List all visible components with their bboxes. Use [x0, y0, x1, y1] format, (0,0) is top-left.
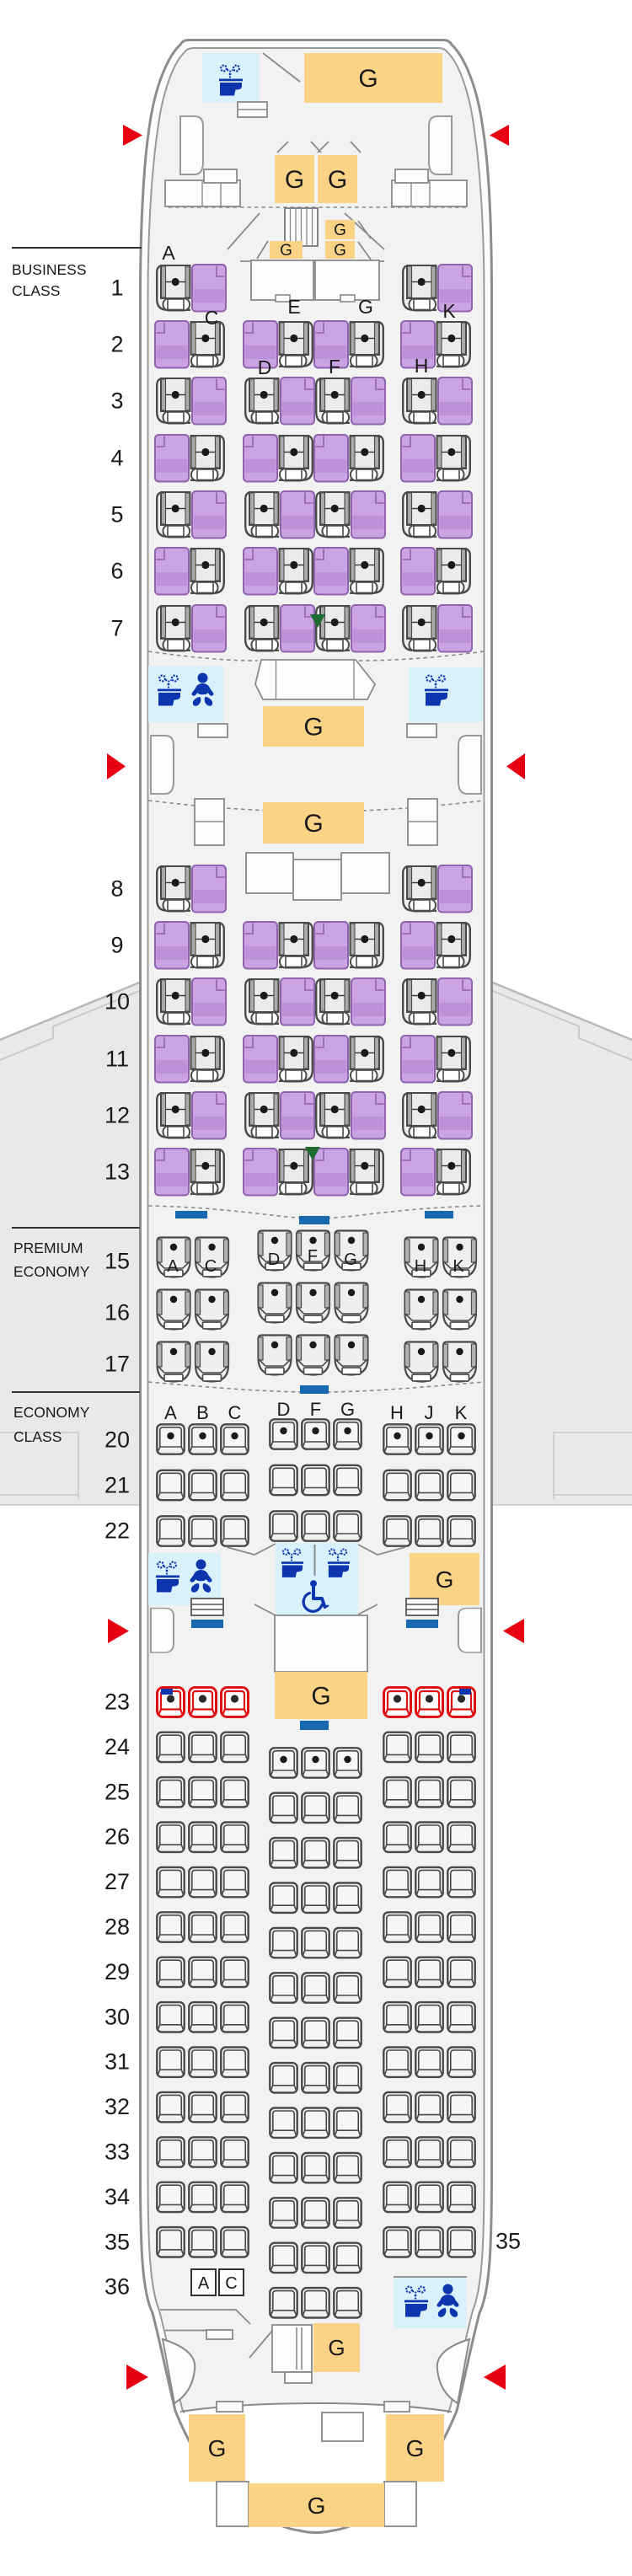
- svg-text:8: 8: [110, 876, 123, 902]
- svg-text:2: 2: [110, 332, 123, 357]
- svg-text:G: G: [280, 242, 292, 260]
- svg-text:PREMIUM: PREMIUM: [13, 1240, 83, 1256]
- svg-text:25: 25: [104, 1779, 130, 1804]
- svg-text:23: 23: [104, 1690, 130, 1715]
- svg-text:5: 5: [110, 502, 123, 528]
- svg-text:G: G: [208, 2435, 227, 2461]
- svg-text:6: 6: [110, 559, 123, 584]
- svg-text:G: G: [328, 2335, 345, 2360]
- svg-text:B: B: [196, 1402, 209, 1423]
- svg-text:26: 26: [104, 1824, 130, 1850]
- svg-text:F: F: [329, 356, 340, 378]
- svg-text:G: G: [358, 296, 373, 318]
- svg-text:E: E: [287, 296, 300, 318]
- svg-text:29: 29: [104, 1959, 130, 1984]
- svg-text:22: 22: [104, 1518, 130, 1544]
- svg-text:A: A: [167, 1257, 179, 1276]
- svg-text:C: C: [225, 2274, 237, 2293]
- svg-text:24: 24: [104, 1734, 130, 1759]
- svg-text:G: G: [303, 714, 323, 742]
- svg-text:21: 21: [104, 1473, 130, 1498]
- svg-text:C: C: [228, 1402, 242, 1423]
- svg-text:G: G: [358, 65, 378, 93]
- svg-text:30: 30: [104, 2004, 130, 2029]
- svg-text:F: F: [310, 1399, 321, 1420]
- svg-text:D: D: [277, 1399, 291, 1420]
- svg-text:31: 31: [104, 2049, 130, 2075]
- svg-text:27: 27: [104, 1869, 130, 1894]
- svg-text:CLASS: CLASS: [13, 1428, 62, 1445]
- svg-text:12: 12: [104, 1103, 130, 1128]
- svg-text:13: 13: [104, 1159, 130, 1185]
- svg-text:K: K: [455, 1402, 468, 1423]
- svg-text:A: A: [162, 242, 175, 264]
- svg-text:G: G: [334, 222, 346, 239]
- svg-text:10: 10: [104, 989, 130, 1015]
- svg-text:ECONOMY: ECONOMY: [13, 1404, 90, 1421]
- svg-text:11: 11: [105, 1047, 129, 1072]
- svg-text:H: H: [390, 1402, 404, 1423]
- svg-text:A: A: [164, 1402, 177, 1423]
- svg-text:D: D: [258, 356, 272, 378]
- svg-text:28: 28: [104, 1915, 130, 1940]
- svg-text:7: 7: [110, 616, 123, 641]
- svg-text:4: 4: [110, 446, 123, 471]
- svg-text:G: G: [340, 1399, 355, 1420]
- svg-text:20: 20: [104, 1427, 130, 1453]
- svg-text:G: G: [406, 2435, 425, 2461]
- svg-text:9: 9: [110, 933, 123, 958]
- svg-text:F: F: [308, 1247, 318, 1266]
- svg-text:G: G: [328, 166, 347, 194]
- svg-text:35: 35: [495, 2229, 521, 2254]
- svg-text:ECONOMY: ECONOMY: [13, 1263, 90, 1280]
- svg-text:H: H: [415, 1257, 426, 1276]
- svg-text:36: 36: [104, 2274, 130, 2300]
- svg-text:G: G: [308, 2493, 326, 2519]
- svg-text:G: G: [436, 1566, 454, 1593]
- svg-text:1: 1: [110, 276, 123, 301]
- svg-text:16: 16: [104, 1300, 130, 1325]
- svg-text:G: G: [344, 1251, 357, 1269]
- svg-text:H: H: [415, 355, 429, 377]
- svg-text:17: 17: [104, 1352, 130, 1377]
- svg-text:G: G: [285, 166, 304, 194]
- svg-text:D: D: [268, 1251, 280, 1269]
- svg-text:32: 32: [104, 2094, 130, 2119]
- svg-text:G: G: [303, 810, 323, 838]
- svg-text:3: 3: [110, 388, 123, 414]
- svg-text:34: 34: [104, 2184, 130, 2209]
- svg-text:C: C: [205, 307, 219, 329]
- svg-text:CLASS: CLASS: [12, 282, 60, 299]
- svg-text:K: K: [442, 300, 456, 322]
- svg-text:G: G: [311, 1683, 330, 1711]
- svg-text:35: 35: [104, 2229, 130, 2254]
- svg-text:BUSINESS: BUSINESS: [12, 261, 87, 278]
- svg-text:K: K: [453, 1257, 464, 1276]
- svg-text:33: 33: [104, 2140, 130, 2165]
- svg-text:A: A: [198, 2274, 210, 2293]
- svg-text:J: J: [425, 1402, 434, 1423]
- svg-text:G: G: [334, 242, 346, 260]
- svg-text:C: C: [205, 1257, 217, 1276]
- svg-text:15: 15: [104, 1249, 130, 1274]
